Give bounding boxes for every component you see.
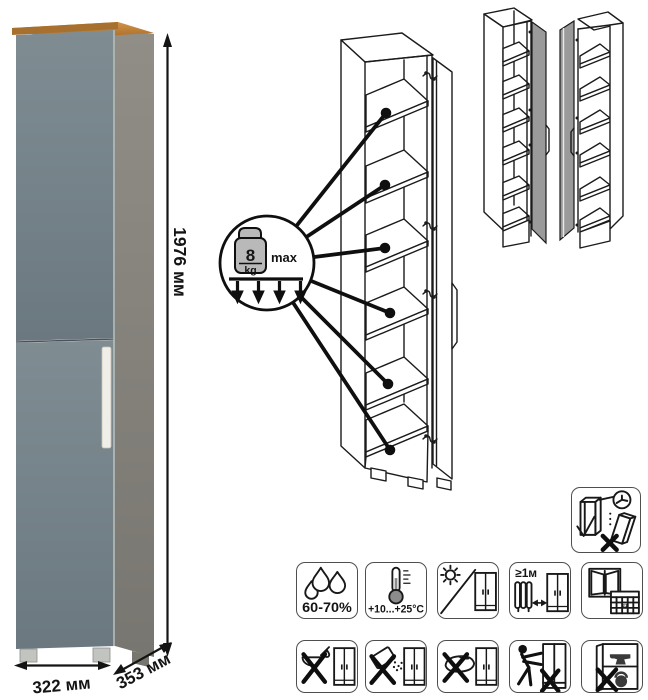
ventilation-calendar-icon: 21 bbox=[581, 562, 643, 619]
humidity-label: 60-70% bbox=[302, 600, 352, 615]
foot-right bbox=[93, 648, 110, 662]
door-handle bbox=[102, 347, 111, 448]
no-aggressive-liquids-icon bbox=[296, 640, 358, 693]
variant-cabinet-right-hinge bbox=[484, 8, 549, 247]
variant-door-gray bbox=[532, 22, 546, 243]
humidity-icon: 60-70% bbox=[296, 562, 358, 619]
cabinet-side-panel bbox=[115, 29, 154, 657]
distance-label: ≥1м bbox=[515, 566, 537, 580]
temperature-label: +10...+25°C bbox=[368, 604, 424, 616]
sun-icon bbox=[441, 566, 460, 585]
max-label: max bbox=[271, 250, 298, 265]
height-dimension: 1976 мм bbox=[163, 33, 190, 657]
do-not-overload-icon bbox=[581, 640, 643, 693]
no-abrasive-powder-icon bbox=[365, 640, 427, 693]
anchor-to-wall-art bbox=[572, 488, 640, 552]
shelf-load-callout: 8 kg max bbox=[220, 216, 314, 310]
powder-grains bbox=[393, 661, 403, 671]
person-icon bbox=[518, 645, 541, 685]
width-dimension: 322 мм bbox=[14, 661, 111, 698]
cabinet-door-upper bbox=[16, 30, 115, 341]
calendar-day: 21 bbox=[622, 603, 628, 609]
anchor-to-wall-icon bbox=[571, 487, 641, 553]
height-label: 1976 мм bbox=[170, 227, 190, 297]
foot-left bbox=[20, 649, 37, 662]
do-not-drag-icon bbox=[509, 640, 571, 693]
weight-unit: kg bbox=[244, 265, 256, 277]
weight-value: 8 bbox=[246, 246, 255, 265]
cabinet-door-lower bbox=[16, 340, 115, 649]
width-label: 322 мм bbox=[32, 674, 92, 698]
x-mark bbox=[603, 536, 617, 550]
product-sheet: 1976 мм 322 мм 353 мм bbox=[0, 0, 648, 700]
shelf bbox=[366, 79, 428, 457]
double-arrow-icon bbox=[533, 600, 546, 605]
no-abrasive-sponge-icon bbox=[437, 640, 499, 693]
cabinet-photo bbox=[12, 22, 154, 667]
radiator-icon bbox=[515, 582, 531, 611]
variant-cabinet-left-hinge bbox=[560, 12, 623, 248]
temperature-icon: +10...+25°C bbox=[365, 562, 427, 619]
weight-icon: 8 kg bbox=[235, 228, 266, 277]
calendar-icon: 21 bbox=[611, 592, 639, 614]
cabinet-diagram: 8 kg max bbox=[220, 33, 457, 490]
keep-1m-from-heat-icon: ≥1м bbox=[509, 562, 571, 619]
diagram-open-door bbox=[433, 58, 457, 479]
no-direct-sunlight-icon bbox=[437, 562, 499, 619]
